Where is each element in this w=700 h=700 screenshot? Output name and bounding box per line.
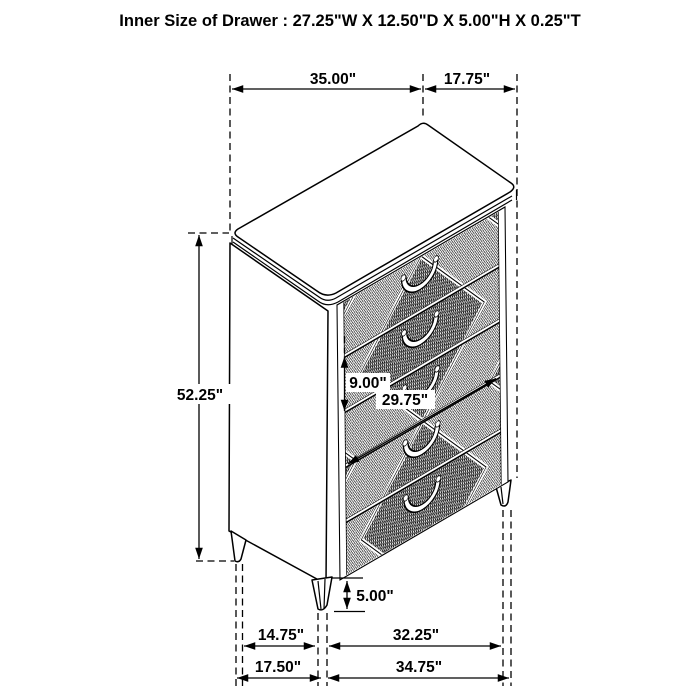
dim-label-base-outer-depth: 17.50" xyxy=(255,659,301,676)
dim-label-overall-height: 52.25" xyxy=(177,387,223,404)
dim-label-base-outer-width: 34.75" xyxy=(396,659,442,676)
dim-label-top-width: 35.00" xyxy=(310,71,356,88)
chest-drawing xyxy=(228,62,617,700)
dimension-base-outer-depth: 17.50" xyxy=(237,659,321,678)
chest-side-panel xyxy=(229,243,328,584)
front-leg xyxy=(312,577,332,610)
dim-label-base-inner-depth: 14.75" xyxy=(258,627,304,644)
diagram-title: Inner Size of Drawer : 27.25"W X 12.50"D… xyxy=(119,12,580,30)
dim-label-drawer-width: 29.75" xyxy=(382,392,428,409)
dimension-base-outer-width: 34.75" xyxy=(328,659,509,678)
dim-label-base-inner-width: 32.25" xyxy=(393,627,439,644)
dimension-leg-height: 5.00" xyxy=(331,578,398,612)
dimension-base-inner-depth: 14.75" xyxy=(244,627,315,646)
dim-label-drawer-height: 9.00" xyxy=(349,375,387,392)
dimension-base-inner-width: 32.25" xyxy=(329,627,501,646)
dimension-top-width: 35.00" xyxy=(232,71,421,89)
chest-dimension-diagram: 35.00" 17.75" 52.25" 9.00" 29.75" 5.00" … xyxy=(0,0,700,700)
dim-label-top-depth: 17.75" xyxy=(444,71,490,88)
dimension-top-depth: 17.75" xyxy=(425,71,515,89)
diagram-canvas: 35.00" 17.75" 52.25" 9.00" 29.75" 5.00" … xyxy=(0,0,700,700)
dim-label-leg-height: 5.00" xyxy=(356,588,394,605)
dimension-overall-height: 52.25" xyxy=(170,235,231,559)
